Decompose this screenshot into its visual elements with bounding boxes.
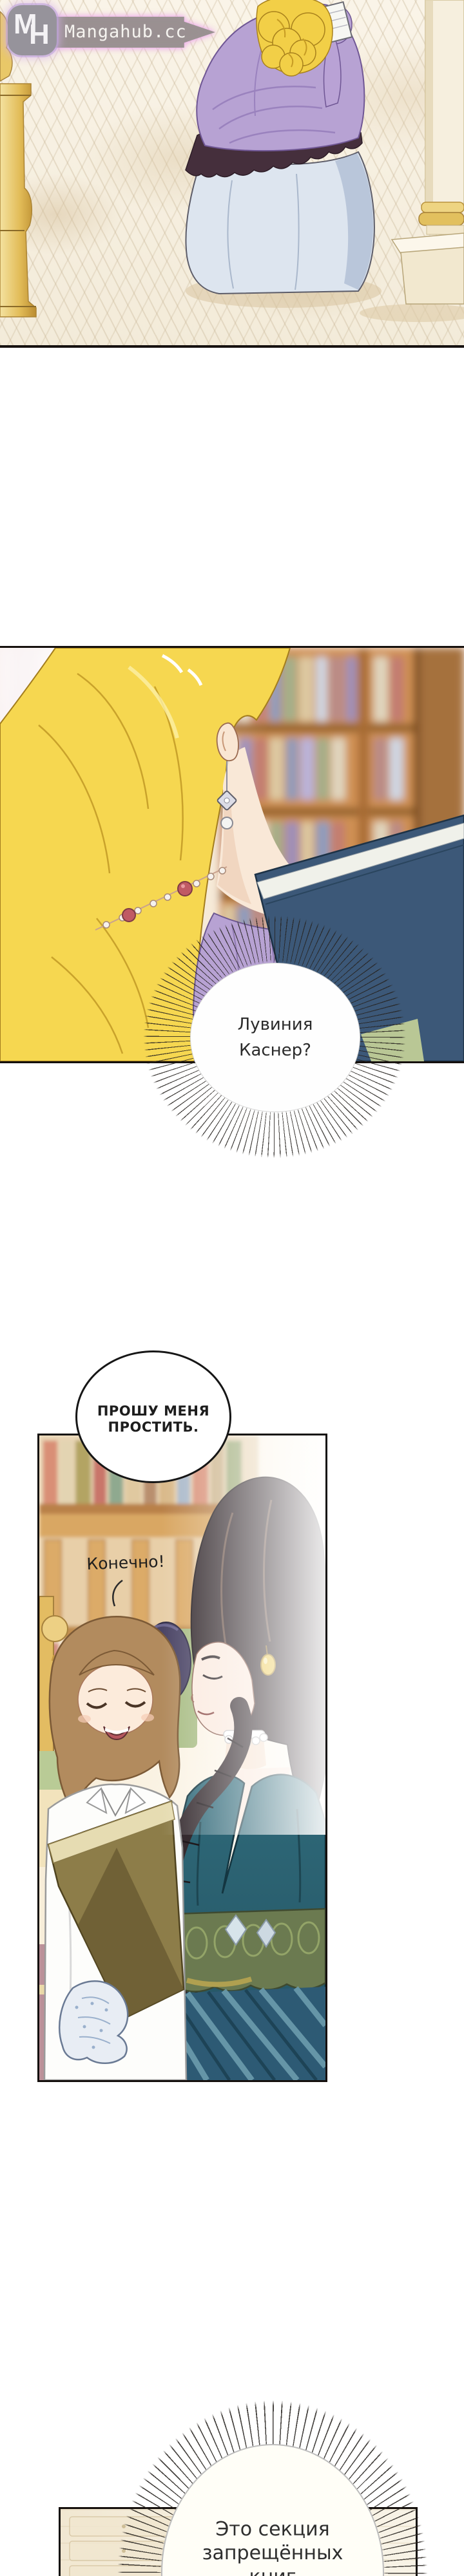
watermark-site-banner: Mangahub.cc: [43, 17, 215, 48]
watermark-site-text: Mangahub.cc: [64, 22, 187, 42]
bubble-text: запрещённых: [202, 2541, 343, 2565]
watermark-logo-h: H: [29, 21, 50, 49]
bubble-text: Это секция: [215, 2517, 329, 2541]
bubble-text: ПРОШУ МЕНЯ: [97, 1403, 209, 1419]
bubble-text: Каснер?: [239, 1037, 311, 1063]
speech-reply: Конечно!: [77, 1551, 175, 1573]
assistant-face: [78, 1664, 153, 1735]
panel-library-greeting: [37, 1434, 327, 2082]
bubble-text: книг: [249, 2565, 296, 2576]
speech-bubble-identify: Лувиния Каснер?: [190, 963, 360, 1112]
speech-reply-tail: [108, 1579, 125, 1607]
watermark-logo-badge: M H: [8, 5, 57, 55]
watermark: Mangahub.cc M H: [0, 0, 232, 64]
light-wash: [162, 1435, 325, 1835]
greeting-scene-art: [39, 1435, 325, 2080]
bubble-text: ПРОСТИТЬ.: [108, 1419, 199, 1435]
marble-column: [360, 0, 464, 322]
speech-bubble-apology: ПРОШУ МЕНЯ ПРОСТИТЬ.: [75, 1350, 231, 1483]
bubble-text: Лувиния: [238, 1012, 313, 1037]
manga-reader-page: Лувиния Каснер? ПРОШУ МЕНЯ ПРОСТИТЬ.: [0, 0, 464, 2576]
lace-glove: [59, 1981, 128, 2063]
